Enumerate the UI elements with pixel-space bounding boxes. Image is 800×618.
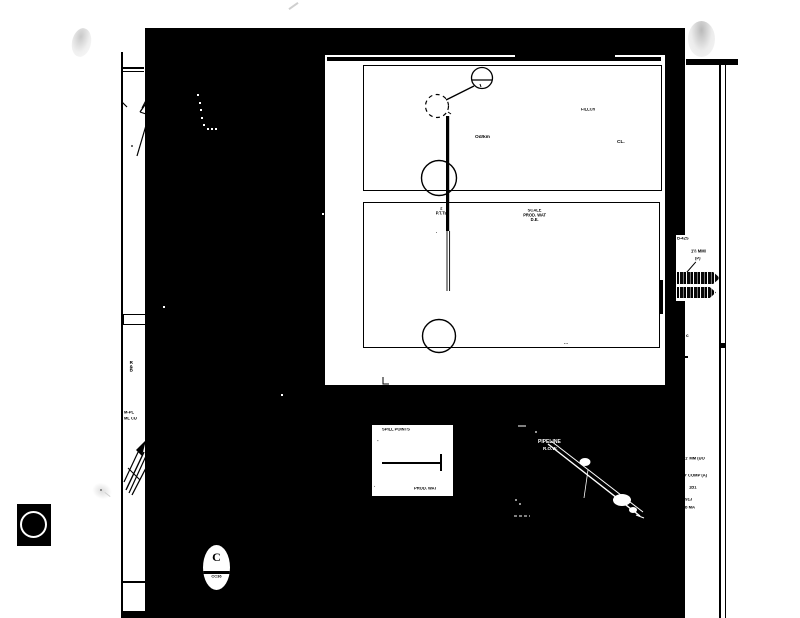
notary-stamp: C CC36 [203,545,230,590]
callout-arrow-banner-2 [677,287,716,298]
scan-artifact-oval-right [688,21,715,57]
scan-noise-speck [281,394,283,396]
stack-line: P.T.Ts [431,212,451,217]
sheet-border-right-2 [725,62,726,618]
margin-rule-short [121,581,146,583]
scale-box-tick: - [377,439,379,445]
punch-hole-ring [20,511,47,538]
scan-noise-speck [199,102,201,104]
scale-box-title: SPILL POINTS [382,428,410,433]
scanned-drawing-page: R&B M-PL ML CU [0,0,800,618]
right-margin-dash [681,356,688,358]
callout-note-1: 1½ MMI [691,250,706,255]
dashed-location-circle [426,95,449,118]
scan-noise-speck [215,128,217,130]
scan-artifact-smudge [90,480,114,502]
callout-code: B-42S [677,237,689,242]
wellhead-symbol [472,68,493,89]
profile-blob-1 [580,458,591,466]
lower-rect-dot: . [436,230,437,236]
scan-noise-speck [201,117,203,119]
corner-mark-top [123,67,144,69]
scan-noise-speck [200,109,202,111]
corner-tick [383,377,389,384]
scan-noise-speck [203,124,205,126]
corner-mark-top-2 [123,71,144,72]
scan-artifact-speck [100,489,102,491]
scale-box-bottom-label: PROD. WAT [414,487,437,492]
scale-bar-end [440,454,442,471]
right-margin-mark: c [686,334,689,340]
scan-noise-speck [207,128,209,130]
plat-linework [325,55,665,385]
right-margin-note: 1B1 [689,486,696,491]
right-margin-top-bar [686,59,738,65]
stamp-band [203,571,230,574]
upper-rect-label-field: FILLCh [581,108,595,113]
scan-noise-speck [322,213,324,215]
margin-note-line-1: M-PL [124,411,134,416]
stack-line: D.E. [521,219,548,224]
margin-vertical-note: R&B [129,361,134,372]
right-margin-note: b MA [685,506,695,511]
right-margin-note: T. 91J [681,498,692,503]
scale-box-corner-mark: · [374,485,376,491]
right-margin-note: U' COMP (A) [683,474,707,479]
callout-arrow-banner-1 [677,272,720,284]
tank-circle-upper [422,161,457,196]
scan-artifact-oval-left [69,26,94,58]
scan-noise-speck [163,306,165,308]
profile-blob-3 [629,507,637,513]
margin-bottom-bar [121,611,146,618]
scale-note-box: SPILL POINTS - · PROD. WAT [372,425,453,496]
scan-artifact-dash [288,2,298,10]
profile-blob-2 [613,494,631,506]
lower-rect-center-stack: SCALE PROD. WAT D.E. [521,209,548,224]
stamp-letter: C [203,550,230,565]
profile-label-1: PIPELINE [538,439,561,445]
sheet-border-right-1 [719,62,721,618]
lower-rect-ellipsis: ... [564,341,568,347]
tank-circle-lower [423,320,456,353]
stamp-code: CC36 [208,575,226,579]
upper-rect-label-right: CL. [617,140,625,146]
profile-diagram: PIPELINE R.O.W. [512,412,652,524]
pressure-callout: B-42S 1½ MMI (P) [676,235,723,301]
right-margin-note: DDJ [677,440,685,445]
scale-bar-line [382,462,441,464]
scan-noise-speck [211,128,213,130]
lower-rect-left-stack: 2 P.T.Ts [431,207,451,217]
plot-panel: FILLCh Od/km CL. 2 P.T.Ts SCALE PROD. WA… [325,55,665,385]
flowline-diagonal [446,86,474,100]
right-margin-note: 1' MM (UO [685,457,705,462]
punch-hole-mark [17,504,51,546]
left-margin-box [123,314,146,325]
margin-note-line-2: ML CU [124,417,137,422]
scan-noise-speck [197,94,199,96]
upper-rect-label-center: Od/km [475,135,490,141]
